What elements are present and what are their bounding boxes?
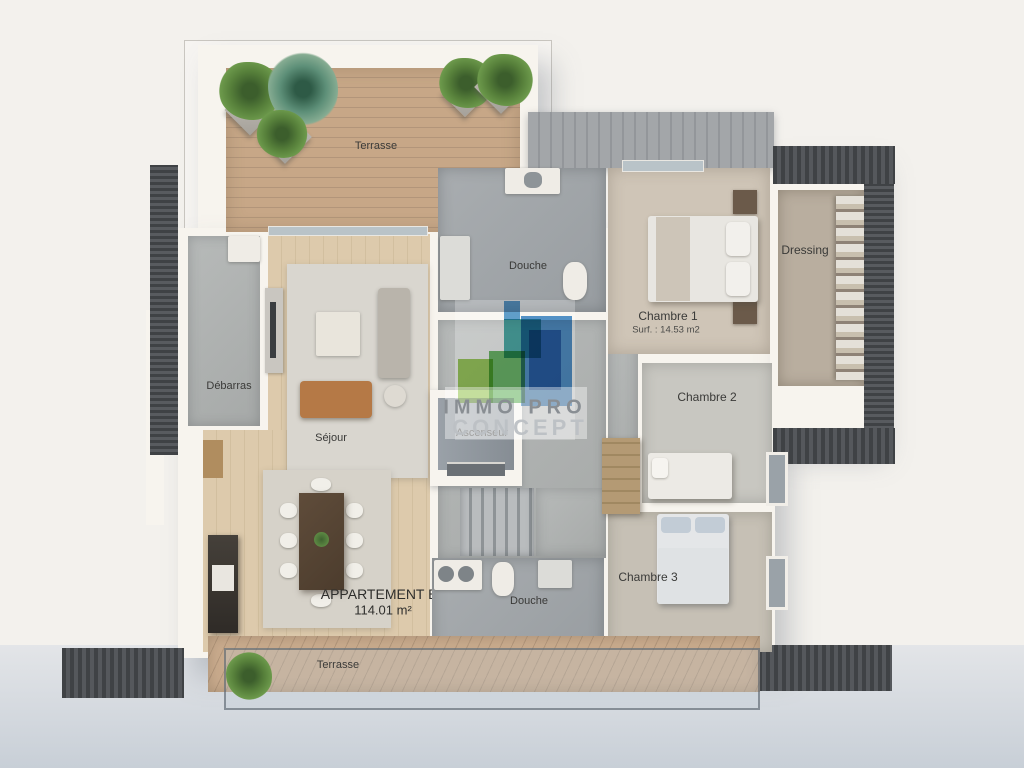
terrace-bottom-glass-railing <box>224 648 760 710</box>
apartment-title: APPARTEMENT B5 <box>321 586 445 602</box>
tv-screen <box>270 302 276 358</box>
dining-chair <box>311 478 331 491</box>
floor-debarras <box>188 236 260 426</box>
room-label-sejour: Séjour <box>315 432 347 444</box>
sofa-gray <box>378 288 410 378</box>
stair-landing <box>536 488 606 556</box>
apartment-area: 114.01 m² <box>354 603 412 618</box>
kitchen-unit-panel <box>212 565 234 591</box>
staircase <box>460 488 534 556</box>
sink-round-icon <box>458 566 474 582</box>
elevator-doors <box>447 462 505 476</box>
logo-square-blue-small <box>504 301 520 320</box>
room-label-douche-bottom: Douche <box>510 595 548 607</box>
room-label-terrasse-top: Terrasse <box>355 140 397 152</box>
watermark-logo: IMMO PRO CONCEPT <box>440 295 600 445</box>
watermark-line2: CONCEPT <box>452 415 588 441</box>
sofa-leather <box>300 381 372 418</box>
roof-dark-right-column <box>864 184 894 432</box>
dining-chair <box>280 563 297 578</box>
floorplan-canvas: { "apartment": { "label": "APPARTEMENT B… <box>0 0 1024 768</box>
table-plant-icon <box>314 532 329 547</box>
room-label-chambre3: Chambre 3 <box>618 570 677 584</box>
debarras-shelf <box>228 236 260 262</box>
logo-square-blue-dark <box>529 330 561 390</box>
toilet-icon <box>492 562 514 596</box>
roof-dark-top-right <box>773 146 895 184</box>
roof-dark-bottom-left <box>62 648 184 698</box>
dining-chair <box>346 503 363 518</box>
room-label-douche-top: Douche <box>509 260 547 272</box>
wardrobe-wood <box>602 438 640 514</box>
window-sejour-terrace <box>268 226 428 236</box>
room-label-chambre1: Chambre 1 <box>638 309 697 323</box>
dining-chair <box>346 563 363 578</box>
dining-chair <box>346 533 363 548</box>
sink-icon <box>524 172 542 188</box>
sink-round-icon <box>438 566 454 582</box>
window-chambre2-right <box>766 452 788 506</box>
room-label-terrasse-bottom: Terrasse <box>317 659 359 671</box>
plant-icon <box>256 110 308 158</box>
bed-throw <box>656 217 690 301</box>
coffee-table <box>316 312 360 356</box>
pillow-icon <box>726 222 750 256</box>
room-label-debarras: Débarras <box>206 380 251 392</box>
room-surface-chambre1: Surf. : 14.53 m2 <box>632 325 700 336</box>
window-chambre1-top <box>622 160 704 172</box>
nightstand <box>733 190 757 214</box>
roof-dark-right-wing-bottom <box>773 428 895 464</box>
window-chambre3-right <box>766 556 788 610</box>
pillow-icon <box>652 458 668 478</box>
room-label-dressing: Dressing <box>781 243 828 257</box>
dining-chair <box>280 533 297 548</box>
kitchen-cabinet <box>203 440 223 478</box>
shower-tray-bottom <box>538 560 572 588</box>
room-label-chambre2: Chambre 2 <box>677 390 736 404</box>
nightstand <box>733 300 757 324</box>
pillow-icon <box>726 262 750 296</box>
roof-dark-left-strip <box>150 165 178 455</box>
shower-tray-top <box>440 236 470 300</box>
dining-chair <box>280 503 297 518</box>
plant-icon <box>226 652 272 700</box>
pillow-icon <box>695 517 725 533</box>
plant-icon <box>476 54 534 106</box>
wardrobe-dressing <box>836 196 864 380</box>
pillow-icon <box>661 517 691 533</box>
side-table-round <box>384 385 406 407</box>
